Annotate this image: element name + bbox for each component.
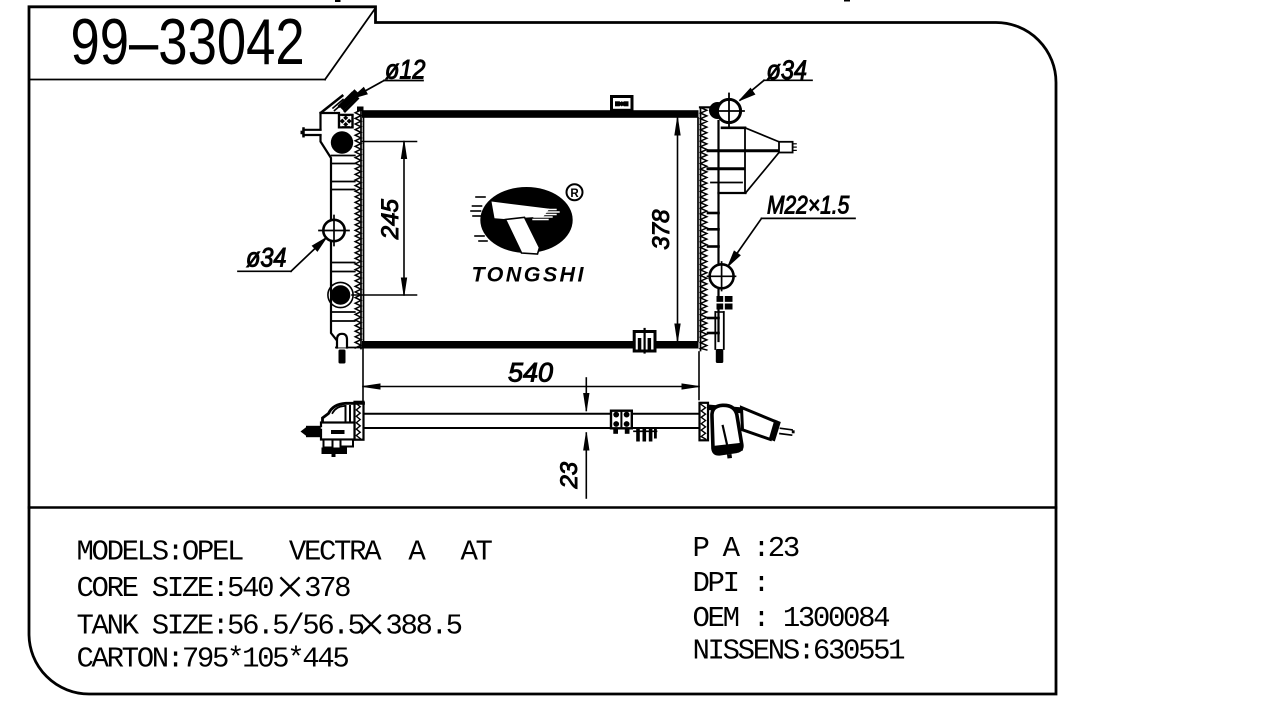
svg-text:CORE SIZE:540378: CORE SIZE:540378 xyxy=(77,572,351,605)
svg-text:245: 245 xyxy=(377,199,404,241)
svg-text:TANK SIZE:56.5/56.5388.5: TANK SIZE:56.5/56.5388.5 xyxy=(77,610,462,643)
svg-text:MODELS:OPEL: MODELS:OPEL xyxy=(77,536,244,569)
svg-text:M22×1.5: M22×1.5 xyxy=(767,191,849,219)
svg-text:NISSENS:630551: NISSENS:630551 xyxy=(693,635,905,668)
svg-text:540: 540 xyxy=(508,358,553,388)
svg-text:TONGSHI: TONGSHI xyxy=(472,263,586,287)
svg-text:VECTRA: VECTRA xyxy=(289,536,382,569)
svg-text:CARTON:795*105*445: CARTON:795*105*445 xyxy=(77,642,349,675)
svg-text:P A :23: P A :23 xyxy=(693,532,799,565)
svg-text:99–33042: 99–33042 xyxy=(71,5,305,79)
svg-text:R: R xyxy=(570,188,579,200)
svg-text:ø34: ø34 xyxy=(246,243,286,273)
svg-text:OEM : 1300084: OEM : 1300084 xyxy=(693,602,890,635)
svg-text:DPI :: DPI : xyxy=(693,567,768,600)
svg-text:AT: AT xyxy=(461,536,493,569)
svg-text:23: 23 xyxy=(556,461,583,489)
svg-text:ø34: ø34 xyxy=(767,55,807,85)
svg-text:378: 378 xyxy=(648,209,675,250)
svg-text:ø12: ø12 xyxy=(385,55,425,85)
